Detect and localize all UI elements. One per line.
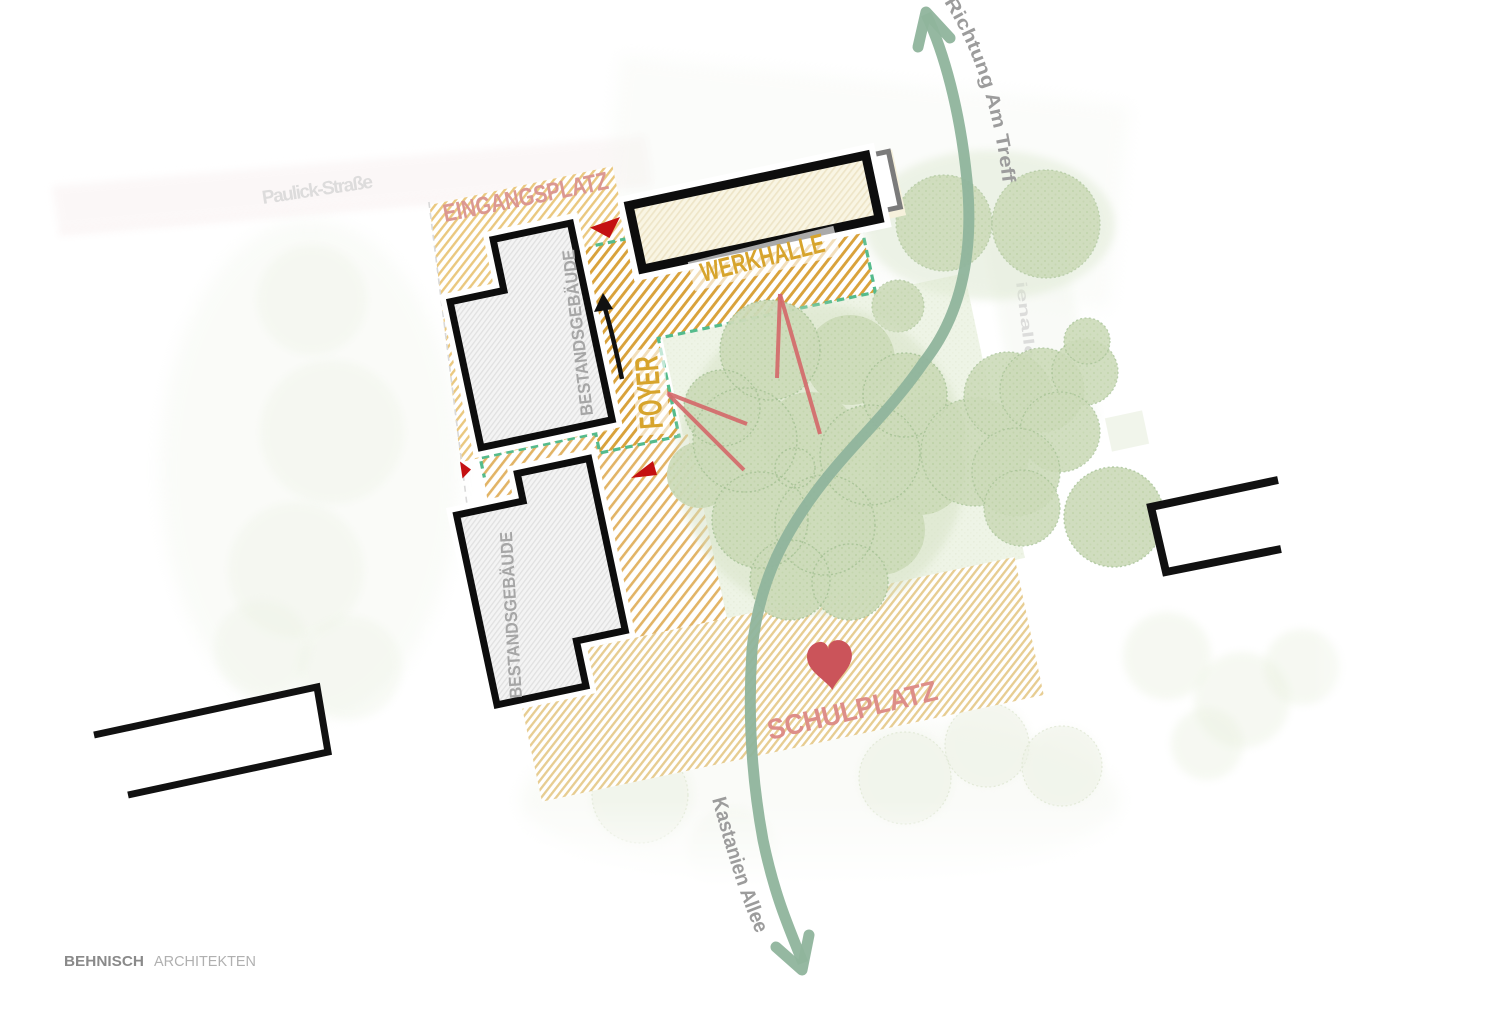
svg-text:BEHNISCH: BEHNISCH [64, 953, 144, 970]
svg-text:ARCHITEKTEN: ARCHITEKTEN [154, 953, 256, 970]
svg-text:FOYER: FOYER [627, 355, 670, 431]
